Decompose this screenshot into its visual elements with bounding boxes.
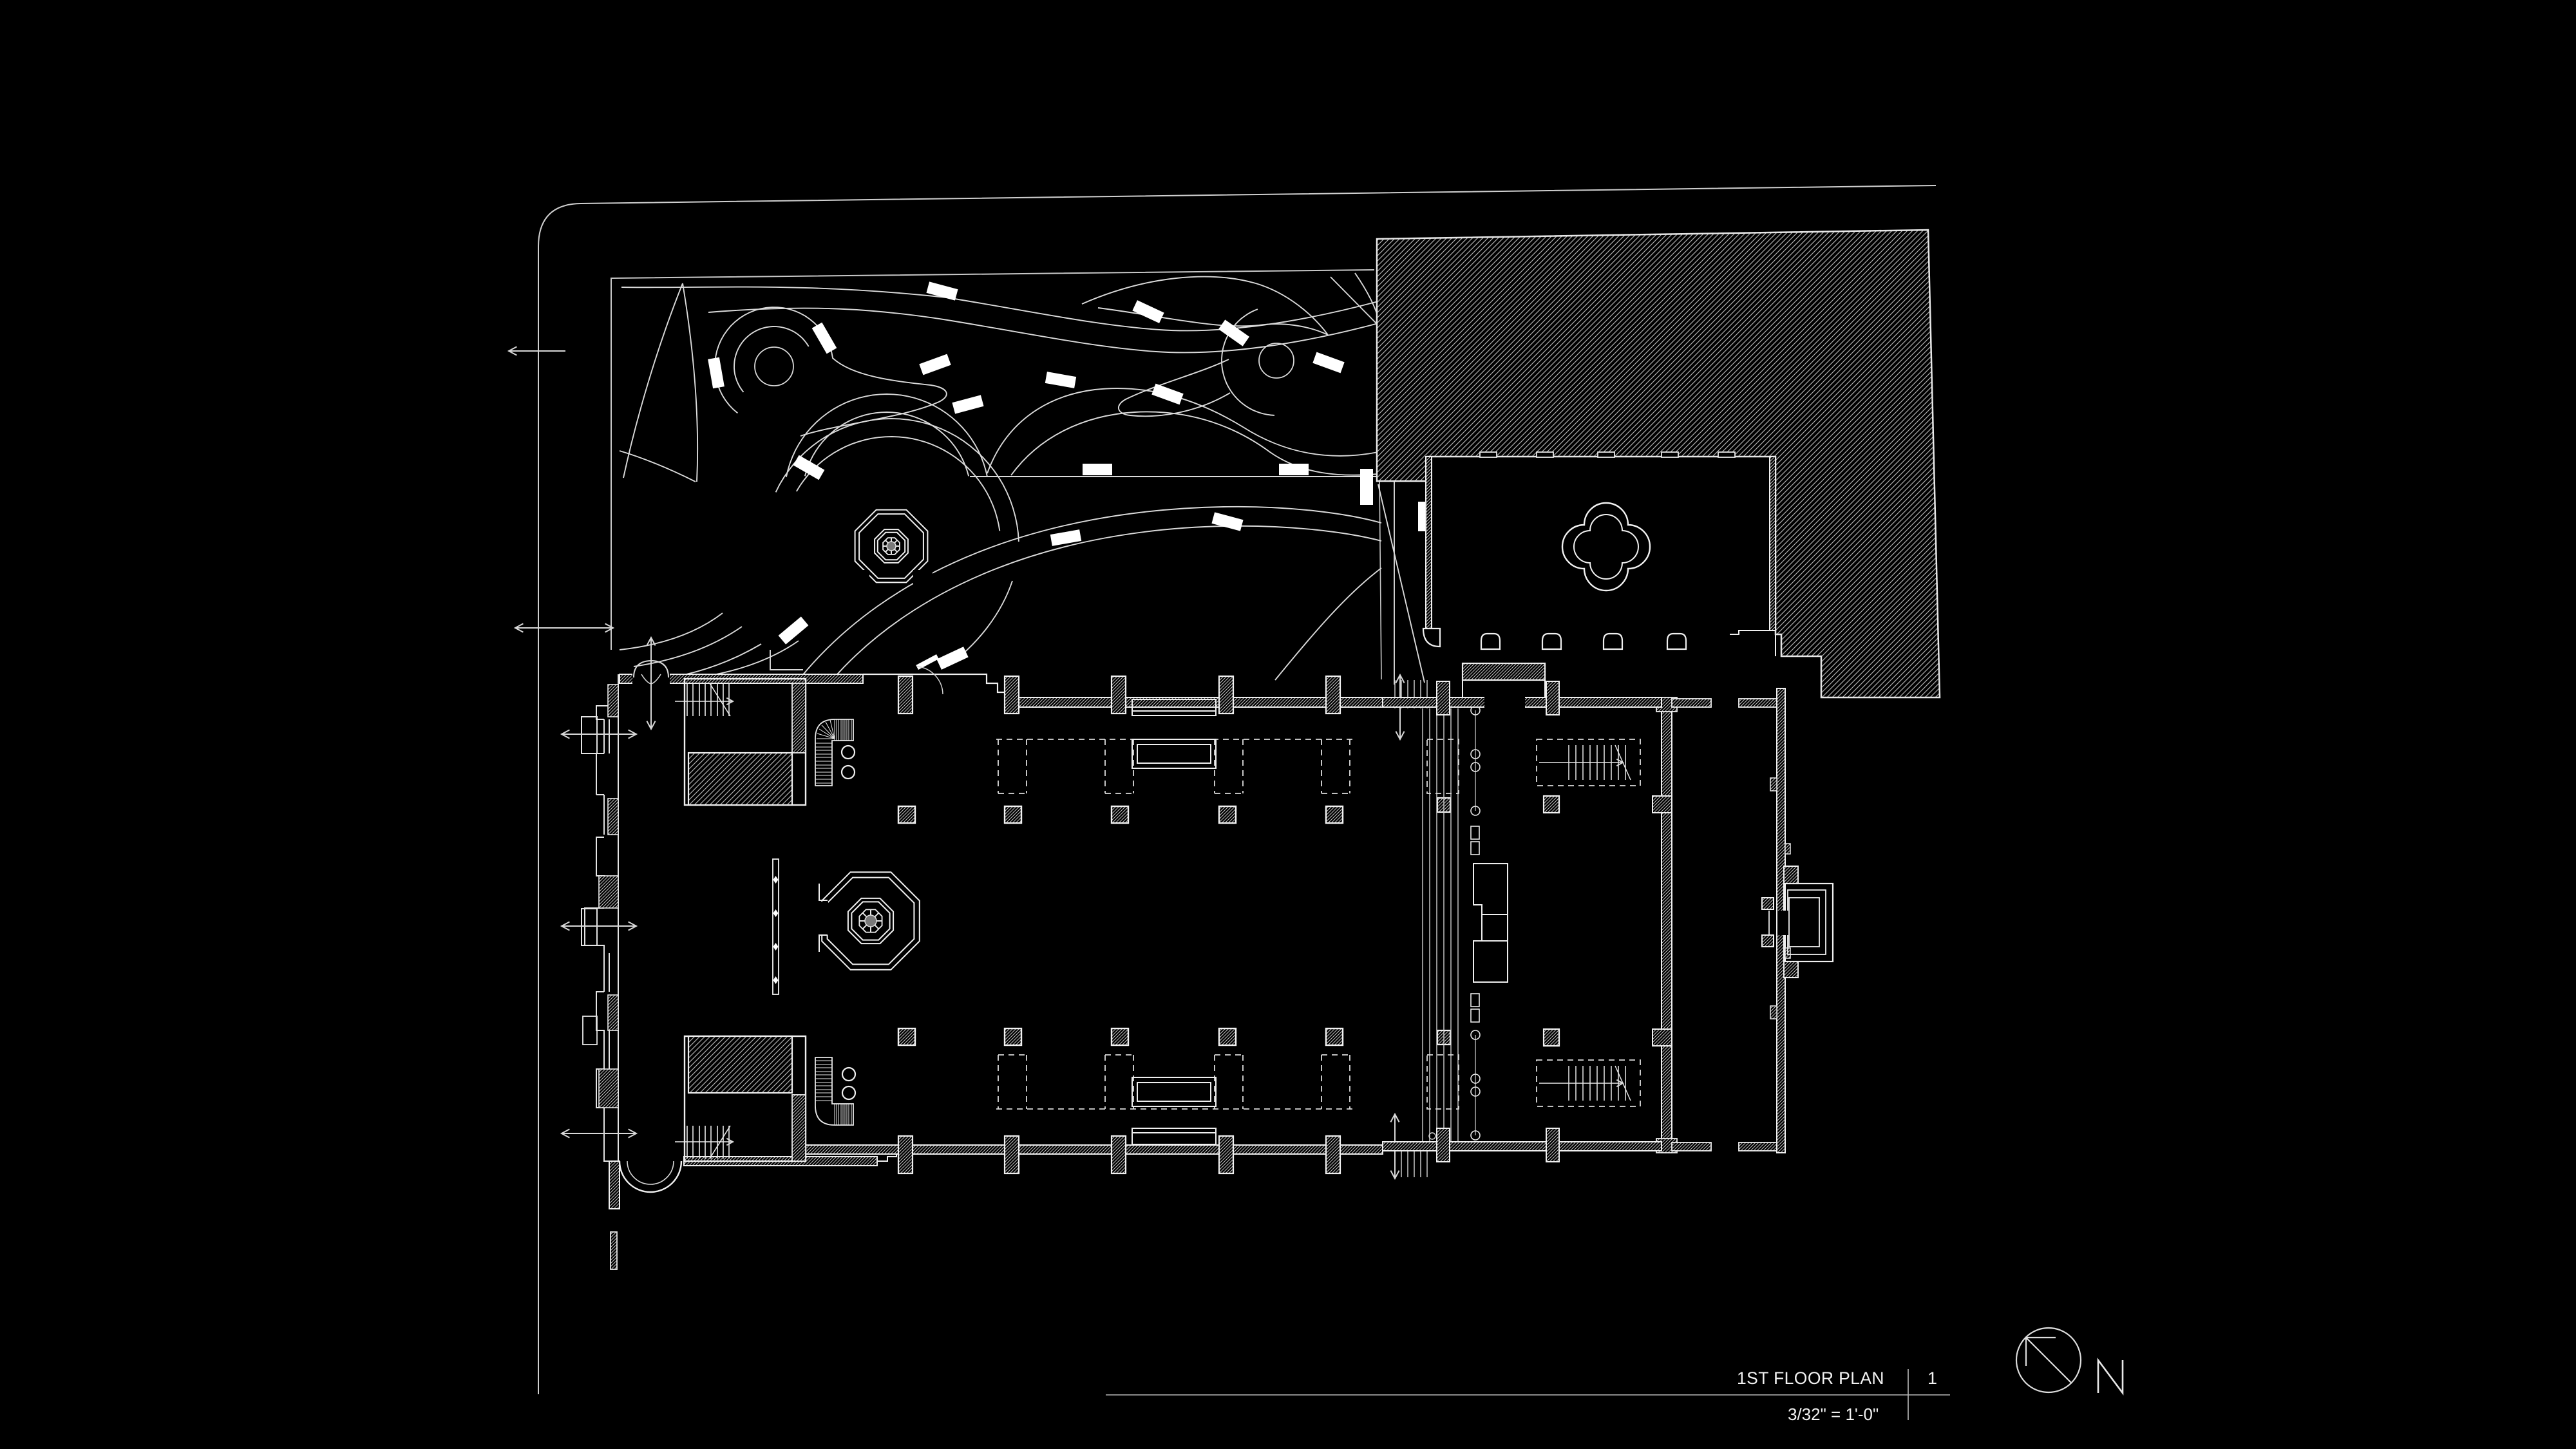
svg-text:1: 1 <box>1927 1368 1937 1388</box>
svg-text:1ST FLOOR PLAN: 1ST FLOOR PLAN <box>1737 1368 1884 1388</box>
svg-text:3/32" = 1'-0": 3/32" = 1'-0" <box>1788 1405 1879 1424</box>
